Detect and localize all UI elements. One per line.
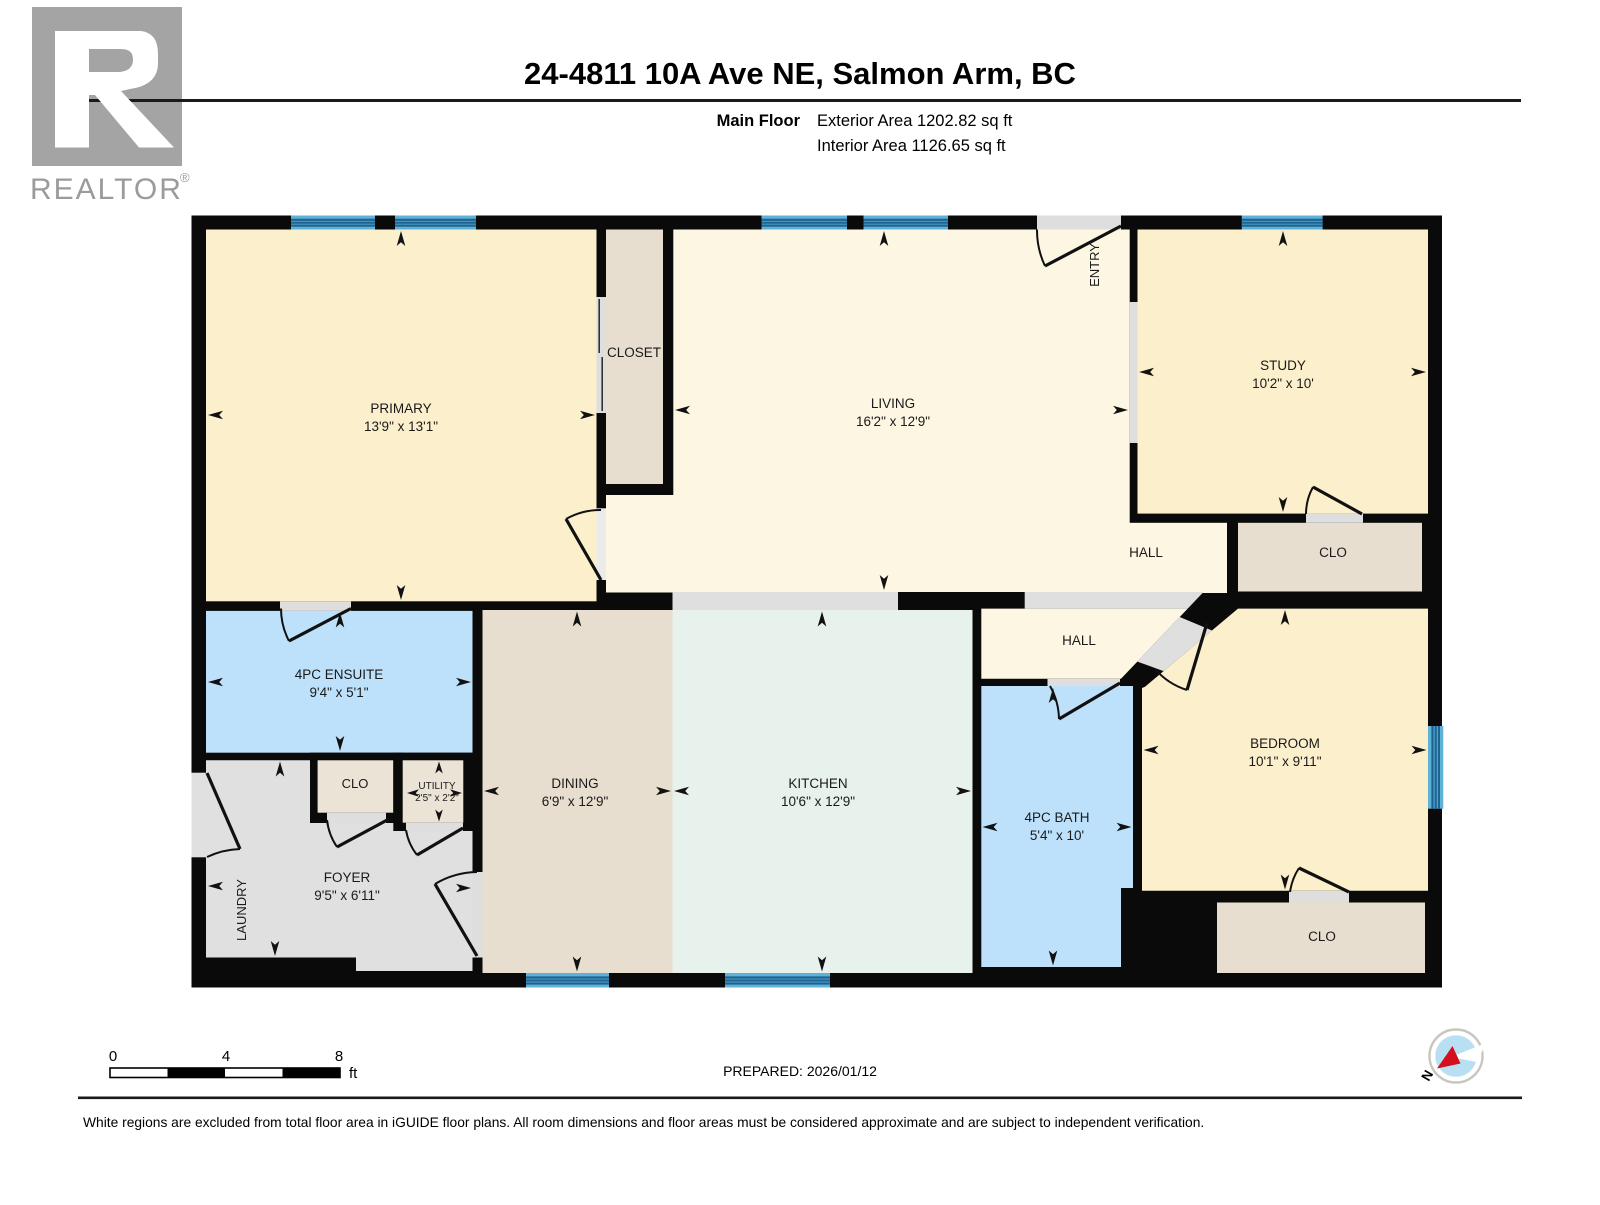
svg-text:REALTOR: REALTOR	[30, 173, 183, 206]
svg-text:9'5" x 6'11": 9'5" x 6'11"	[314, 888, 380, 903]
svg-text:24-4811 10A Ave NE, Salmon Arm: 24-4811 10A Ave NE, Salmon Arm, BC	[524, 56, 1076, 91]
svg-text:HALL: HALL	[1062, 633, 1096, 648]
svg-text:2'5" x 2'2": 2'5" x 2'2"	[415, 793, 459, 804]
svg-text:STUDY: STUDY	[1260, 358, 1306, 373]
svg-text:0: 0	[109, 1048, 117, 1065]
svg-text:CLOSET: CLOSET	[607, 345, 661, 360]
svg-text:BEDROOM: BEDROOM	[1250, 736, 1320, 751]
svg-text:CLO: CLO	[1319, 545, 1347, 560]
svg-text:DINING: DINING	[551, 776, 598, 791]
svg-text:ft: ft	[349, 1065, 358, 1082]
svg-text:UTILITY: UTILITY	[418, 781, 456, 792]
svg-text:4PC BATH: 4PC BATH	[1024, 810, 1089, 825]
svg-text:Interior Area 1126.65 sq ft: Interior Area 1126.65 sq ft	[817, 137, 1006, 155]
svg-text:10'2" x 10': 10'2" x 10'	[1252, 376, 1314, 391]
svg-text:13'9" x 13'1": 13'9" x 13'1"	[364, 419, 438, 434]
svg-text:CLO: CLO	[342, 776, 369, 791]
svg-text:ENTRY: ENTRY	[1087, 243, 1102, 287]
svg-text:HALL: HALL	[1129, 545, 1163, 560]
svg-text:5'4" x 10': 5'4" x 10'	[1030, 828, 1084, 843]
svg-text:8: 8	[335, 1048, 343, 1065]
svg-text:KITCHEN: KITCHEN	[788, 776, 847, 791]
svg-text:4PC ENSUITE: 4PC ENSUITE	[295, 667, 384, 682]
svg-text:LAUNDRY: LAUNDRY	[234, 879, 249, 941]
svg-text:CLO: CLO	[1308, 929, 1336, 944]
svg-text:4: 4	[222, 1048, 230, 1065]
svg-text:Main Floor: Main Floor	[717, 112, 801, 130]
svg-text:6'9" x 12'9": 6'9" x 12'9"	[542, 794, 609, 809]
svg-text:PREPARED: 2026/01/12: PREPARED: 2026/01/12	[723, 1063, 877, 1079]
svg-text:10'6" x 12'9": 10'6" x 12'9"	[781, 794, 855, 809]
svg-text:White regions are excluded fro: White regions are excluded from total fl…	[83, 1115, 1204, 1130]
svg-text:10'1" x 9'11": 10'1" x 9'11"	[1248, 754, 1321, 769]
svg-text:9'4" x 5'1": 9'4" x 5'1"	[309, 685, 368, 700]
svg-text:Exterior Area 1202.82 sq ft: Exterior Area 1202.82 sq ft	[817, 112, 1013, 130]
svg-text:LIVING: LIVING	[871, 396, 915, 411]
svg-text:®: ®	[180, 170, 190, 185]
svg-text:FOYER: FOYER	[324, 870, 371, 885]
svg-text:PRIMARY: PRIMARY	[370, 401, 431, 416]
svg-text:16'2" x 12'9": 16'2" x 12'9"	[856, 414, 930, 429]
